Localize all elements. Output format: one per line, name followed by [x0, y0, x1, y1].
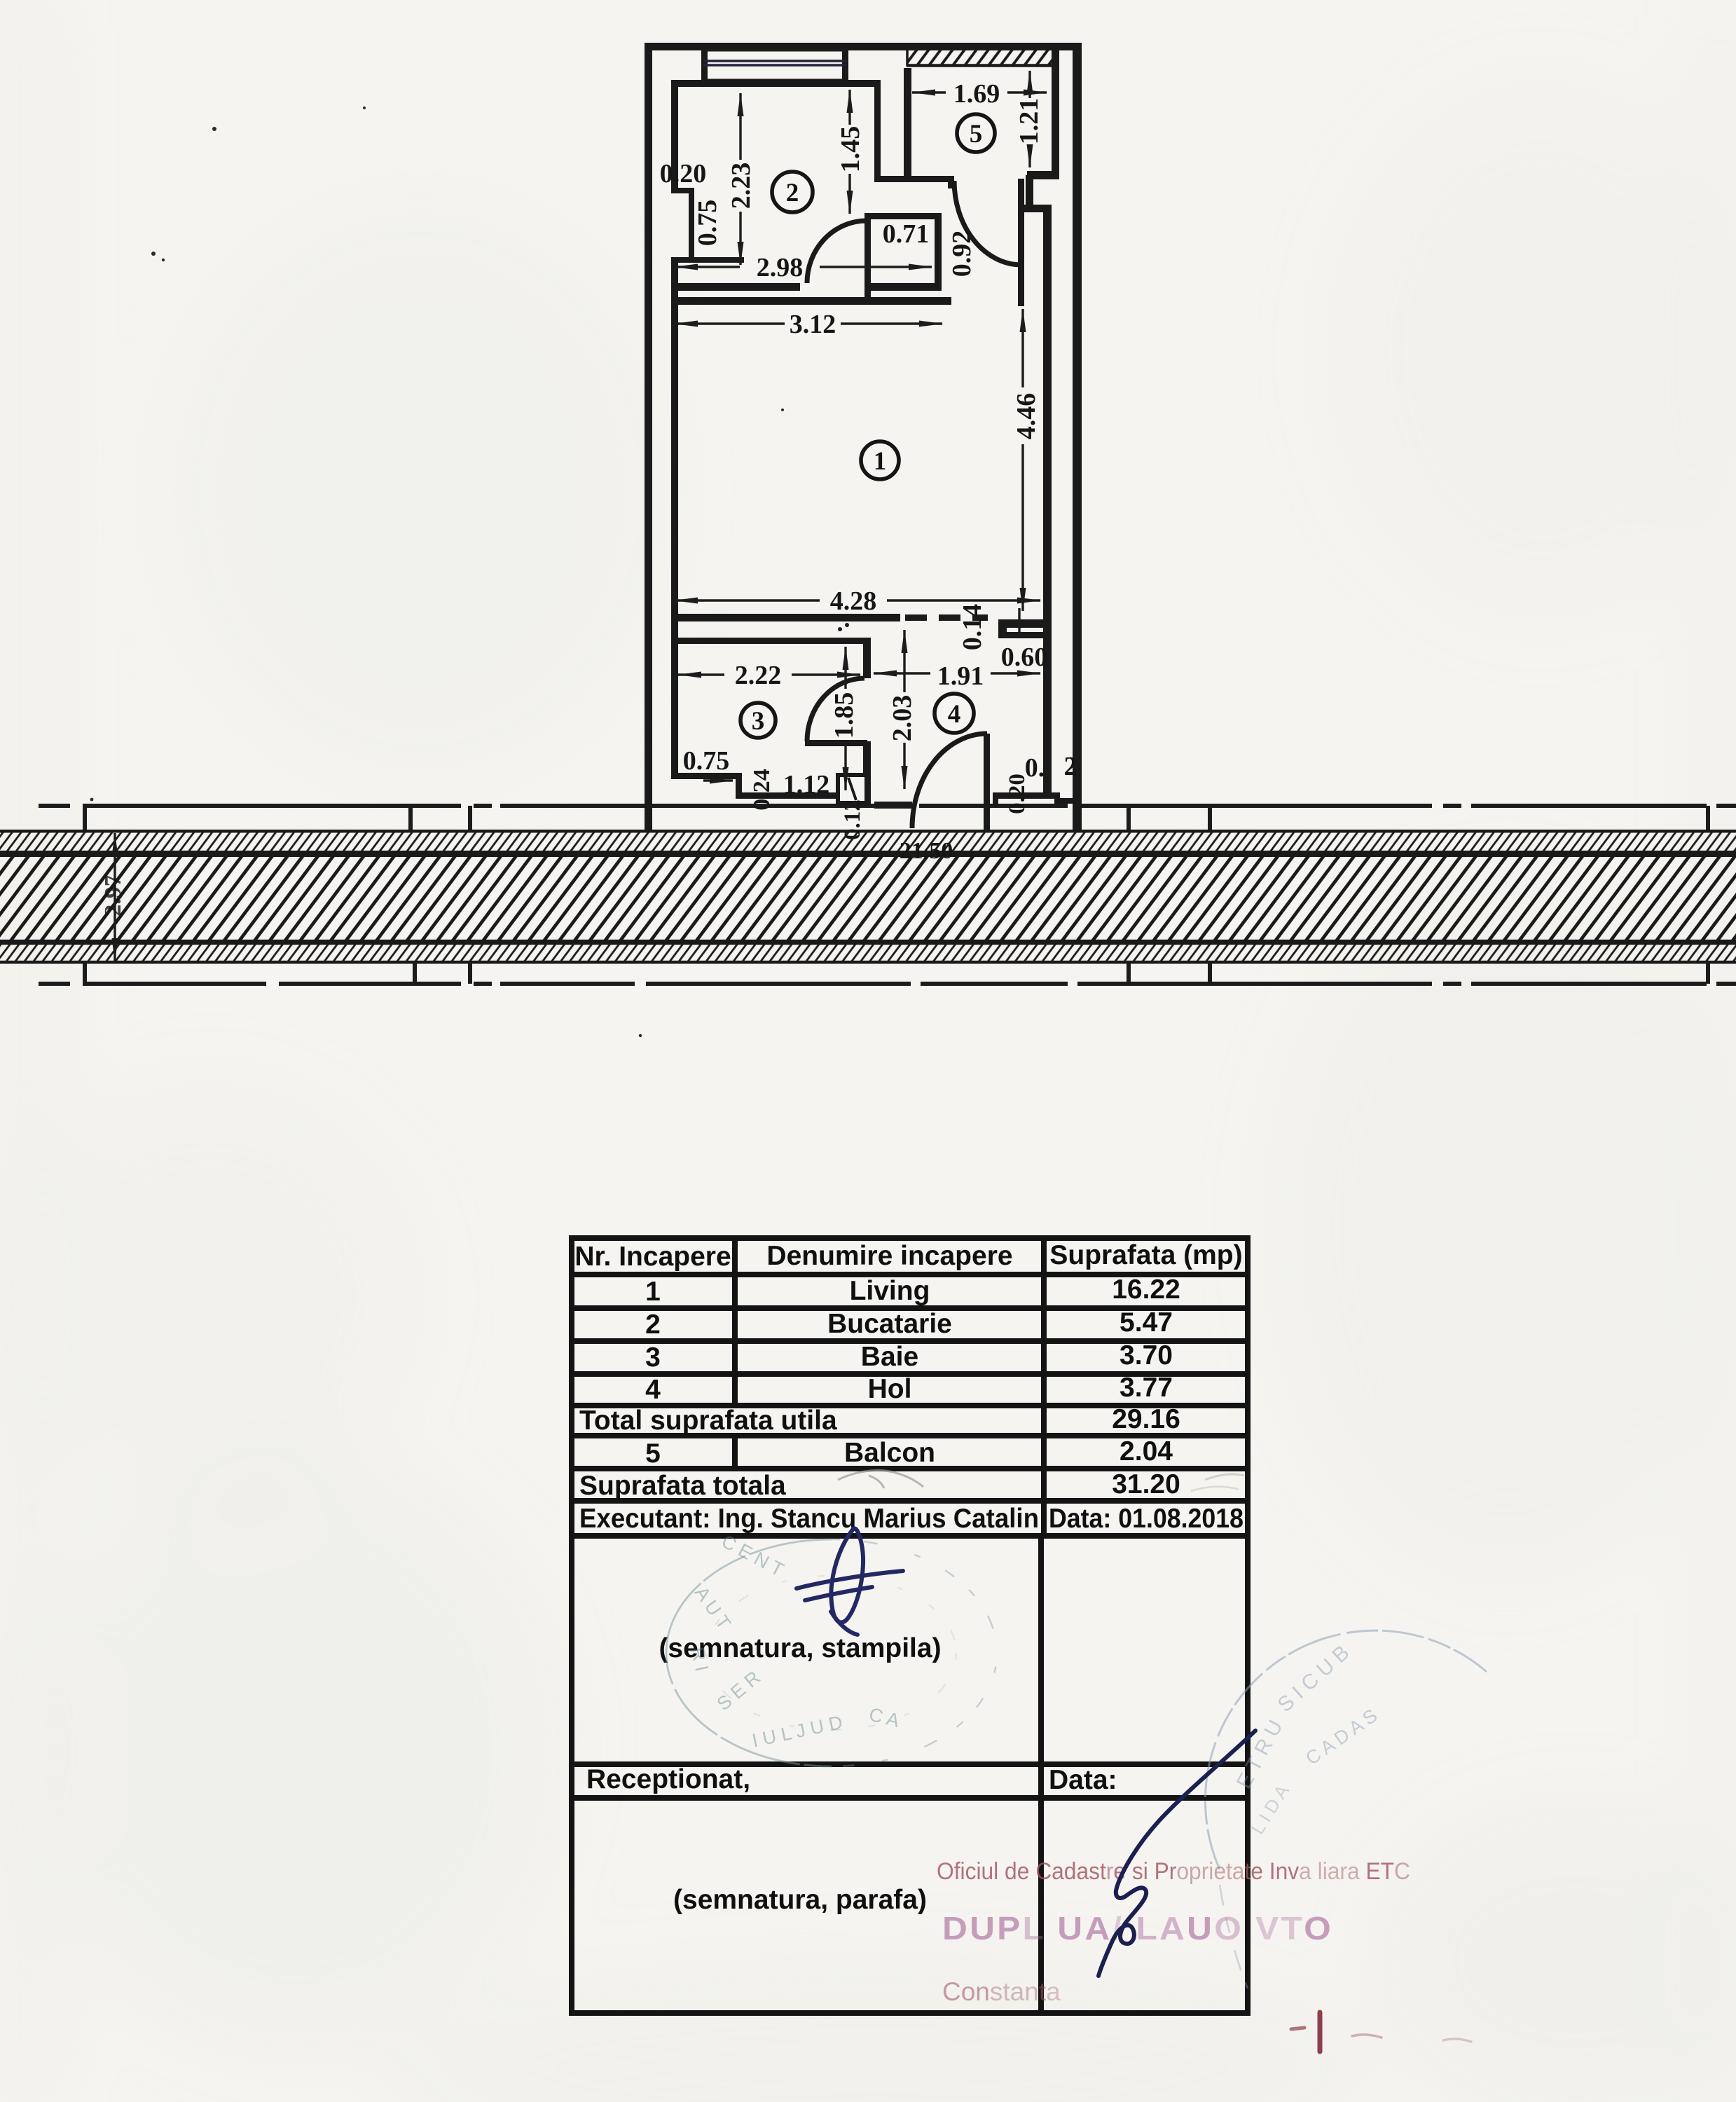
svg-text:Data:: Data:: [1049, 1765, 1117, 1795]
svg-text:3.77: 3.77: [1120, 1373, 1173, 1403]
svg-text:(semnatura, parafa): (semnatura, parafa): [673, 1885, 927, 1915]
svg-text:DUPL UA/ LAUO VTO: DUPL UA/ LAUO VTO: [942, 1910, 1333, 1946]
svg-text:2.22: 2.22: [735, 661, 782, 690]
svg-text:0.: 0.: [1025, 753, 1045, 783]
svg-text:21.50: 21.50: [900, 838, 953, 864]
svg-text:Suprafata (mp): Suprafata (mp): [1049, 1240, 1242, 1270]
svg-text:Total suprafata utila: Total suprafata utila: [579, 1406, 837, 1436]
svg-text:Executant: Ing. Stancu Marius: Executant: Ing. Stancu Marius Catalin: [579, 1504, 1039, 1534]
svg-text:0.24: 0.24: [749, 769, 775, 811]
svg-text:3: 3: [645, 1342, 661, 1373]
svg-text:3: 3: [752, 707, 765, 736]
svg-text:3.12: 3.12: [790, 310, 836, 339]
svg-text:0.60: 0.60: [1001, 643, 1048, 672]
svg-text:2.97: 2.97: [100, 874, 126, 916]
svg-text:5: 5: [645, 1438, 661, 1469]
svg-text:Hol: Hol: [868, 1374, 912, 1404]
svg-text:Nr. Incapere: Nr. Incapere: [574, 1242, 731, 1272]
svg-text:Receptionat,: Receptionat,: [586, 1764, 750, 1794]
svg-text:Bucatarie: Bucatarie: [827, 1309, 952, 1339]
svg-text:2.03: 2.03: [888, 695, 917, 742]
svg-text:1.91: 1.91: [937, 661, 984, 691]
svg-text:1.12: 1.12: [783, 770, 830, 799]
svg-text:Living: Living: [850, 1276, 930, 1306]
svg-text:4: 4: [645, 1375, 661, 1405]
svg-text:2: 2: [645, 1310, 661, 1340]
svg-text:4: 4: [948, 700, 961, 729]
svg-text:16.22: 16.22: [1112, 1275, 1180, 1305]
svg-text:2.98: 2.98: [757, 253, 804, 282]
svg-text:Suprafata totala: Suprafata totala: [579, 1471, 786, 1501]
svg-text:0.92: 0.92: [947, 231, 977, 277]
svg-text:0.75: 0.75: [683, 746, 730, 776]
svg-text:31.20: 31.20: [1112, 1469, 1180, 1499]
svg-text:0.14: 0.14: [958, 604, 987, 651]
svg-text:0.12: 0.12: [840, 799, 865, 840]
svg-text:Denumire incapere: Denumire incapere: [766, 1241, 1012, 1271]
svg-text:5.47: 5.47: [1120, 1307, 1173, 1338]
svg-text:1.85: 1.85: [829, 692, 859, 739]
svg-text:3.70: 3.70: [1120, 1340, 1173, 1371]
svg-text:1: 1: [645, 1277, 661, 1307]
svg-text:Baie: Baie: [861, 1342, 918, 1372]
svg-text:Oficiul de Cadastre si Proprie: Oficiul de Cadastre si Proprietate Inva …: [937, 1858, 1410, 1885]
svg-text:1.21: 1.21: [1014, 98, 1044, 145]
svg-text:Balcon: Balcon: [844, 1438, 935, 1468]
svg-text:29.16: 29.16: [1112, 1404, 1180, 1434]
svg-text:2.23: 2.23: [726, 163, 756, 209]
svg-text:1.45: 1.45: [836, 126, 865, 173]
svg-text:0.20: 0.20: [660, 159, 707, 188]
svg-text:2: 2: [786, 179, 799, 207]
svg-text:2.04: 2.04: [1120, 1436, 1173, 1466]
svg-text:Constanta: Constanta: [942, 1977, 1061, 2006]
svg-text:0.71: 0.71: [883, 219, 930, 249]
svg-text:2: 2: [1064, 752, 1077, 781]
svg-text:Data: 01.08.2018: Data: 01.08.2018: [1049, 1504, 1244, 1534]
svg-text:1.69: 1.69: [953, 79, 1000, 109]
svg-text:1: 1: [874, 447, 887, 476]
svg-text:0.75: 0.75: [693, 200, 722, 247]
svg-text:5: 5: [970, 120, 983, 149]
svg-text:4.28: 4.28: [830, 586, 877, 616]
svg-text:4.46: 4.46: [1012, 393, 1041, 440]
